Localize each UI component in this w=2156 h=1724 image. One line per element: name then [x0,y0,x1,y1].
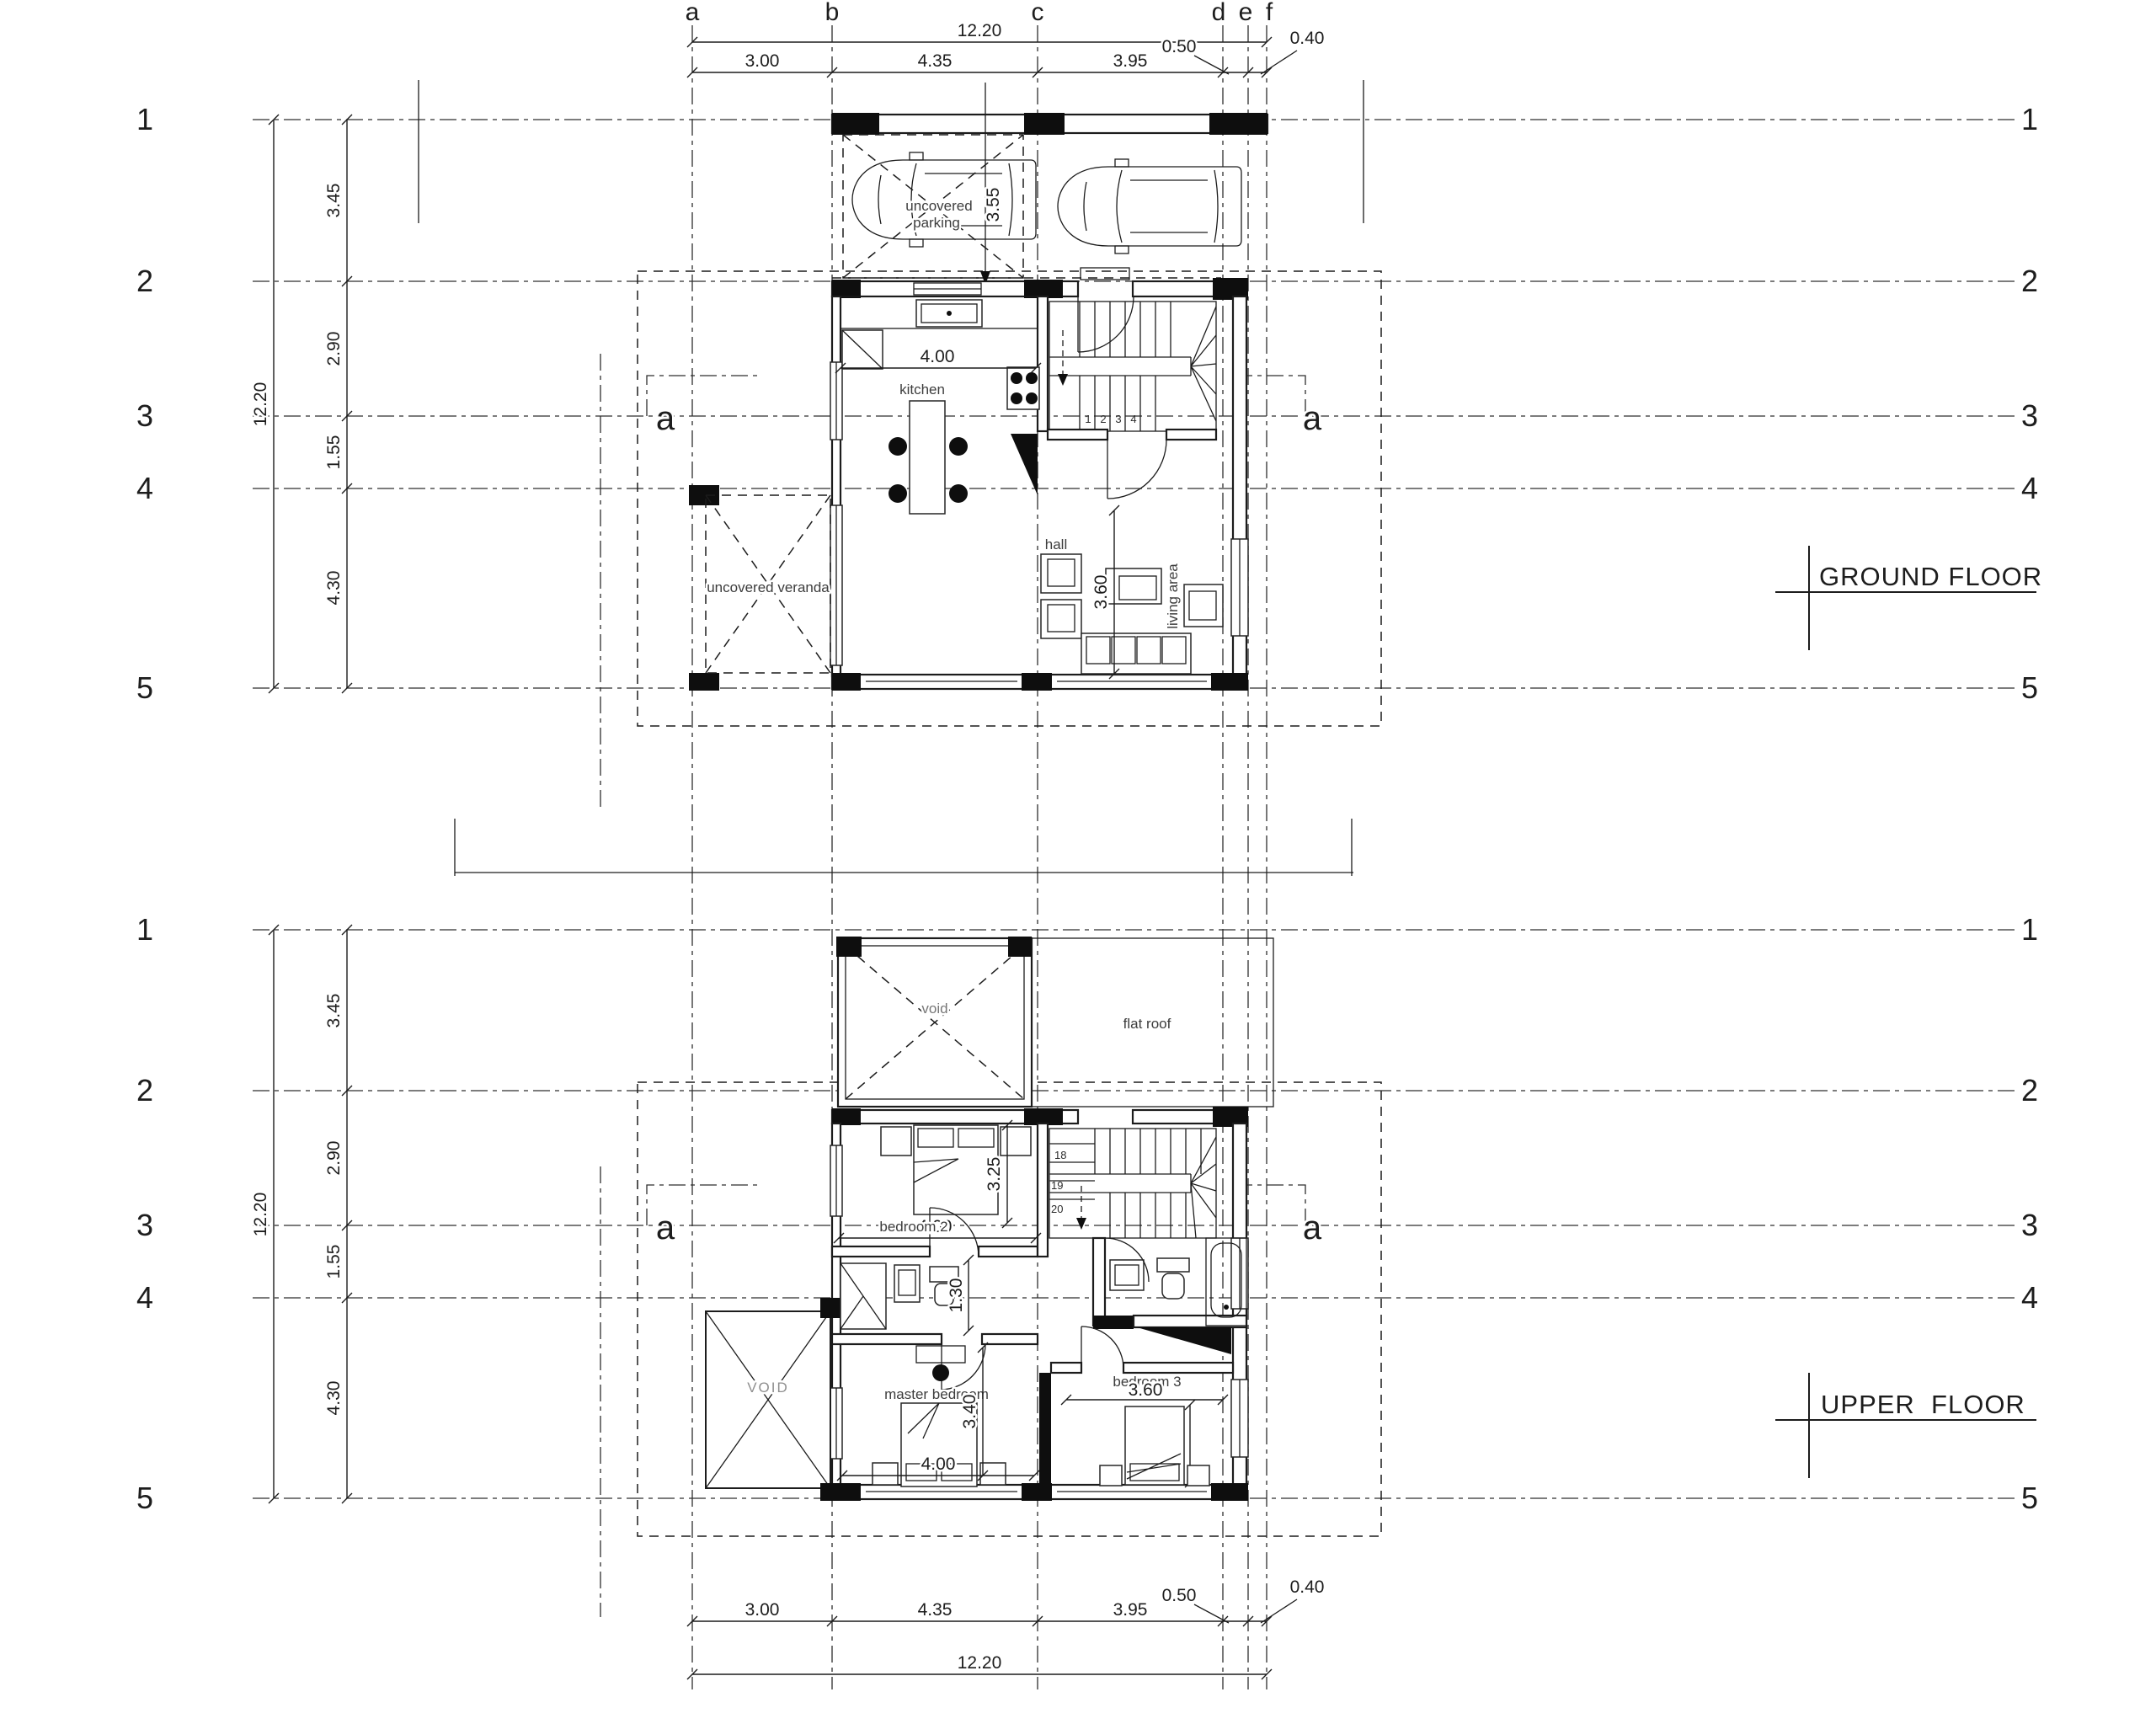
dim-left-u-4: 4.30 [324,1381,344,1416]
step-18: 18 [1054,1149,1066,1161]
dim-040-bot: 0.40 [1290,1577,1325,1597]
stairs-ground: 1 2 3 4 [1049,296,1216,431]
label-bedroom2: bedroom 2 [879,1219,947,1235]
dimensions-left-ground: 12.20 3.45 2.90 1.55 4.30 [251,115,352,693]
row-3-gr: 3 [2021,398,2038,433]
dimensions-left-upper: 12.20 3.45 2.90 1.55 4.30 [251,925,352,1503]
row-4-gr: 4 [2021,471,2038,505]
row-1-gr: 1 [2021,102,2038,136]
row-4-gl: 4 [136,471,153,505]
bedroom2: 4.00 3.25 bedroom 2 [832,1120,1048,1257]
dim-seg-top-3: 3.95 [1113,51,1148,71]
row-1-ul: 1 [136,912,153,947]
step-2: 2 [1100,413,1106,425]
label-flat-roof: flat roof [1123,1016,1171,1032]
grid-letter-c: c [1032,0,1044,26]
dim-seg-top-1: 3.00 [745,51,780,71]
grid-letter-e: e [1239,0,1253,26]
row-2-ul: 2 [136,1073,153,1108]
dim-parking-depth: 3.55 [984,188,1003,222]
understair-closet [1011,434,1038,495]
label-living: living area [1165,563,1181,629]
sloped-hatch [1137,1327,1231,1354]
label-hall: hall [1045,536,1067,552]
floor-plan: a b c d e f 12.20 3.00 4.35 3.95 0.50 0.… [0,0,2156,1724]
stairs-upper: 18 19 20 [1049,1129,1216,1238]
veranda: uncovered veranda [689,485,830,691]
label-veranda: uncovered veranda [707,579,830,595]
wall-master-bedroom3 [1039,1373,1051,1485]
section-a-ur: a [1303,1209,1322,1246]
row-4-ul: 4 [136,1280,153,1315]
row-2-gr: 2 [2021,264,2038,298]
step-1: 1 [1085,413,1091,425]
dim-kitchen-width: 4.00 [921,347,955,366]
row-2-gl: 2 [136,264,153,298]
dim-seg-top-2: 4.35 [918,51,953,71]
section-a-gr: a [1303,400,1322,437]
dim-left-u-2: 2.90 [324,1141,344,1176]
grid-letter-f: f [1266,0,1273,26]
bedroom3: bedroom 3 3.60 3.80 [1051,1326,1233,1487]
hall-door [1107,440,1166,499]
row-5-ur: 5 [2021,1481,2038,1515]
bathroom [1093,1238,1246,1354]
dim-left-total-u: 12.20 [251,1193,270,1237]
row-1-gl: 1 [136,102,153,136]
row-2-ur: 2 [2021,1073,2038,1108]
dim-master-width: 4.00 [921,1454,956,1474]
dim-overall-bot: 12.20 [958,1653,1002,1673]
dim-bedroom2-depth: 3.25 [985,1157,1004,1192]
dim-left-total-g: 12.20 [251,382,270,427]
step-4: 4 [1130,413,1136,425]
row-5-ul: 5 [136,1481,153,1515]
grid-letter-b: b [825,0,840,26]
step-3: 3 [1115,413,1121,425]
row-labels: 1 2 3 4 5 1 2 3 4 5 1 2 3 4 5 1 2 3 4 5 [136,102,2038,1515]
dim-master-depth: 3.40 [960,1395,979,1429]
step-19: 19 [1051,1179,1063,1192]
step-20: 20 [1051,1203,1063,1215]
parking-area: uncovered parking 3.55 [832,83,1267,285]
row-5-gl: 5 [136,670,153,705]
row-4-ur: 4 [2021,1280,2038,1315]
roof-void: void flat roof [836,937,1273,1107]
row-5-gr: 5 [2021,670,2038,705]
dimensions-top: a b c d e f 12.20 3.00 4.35 3.95 0.50 0.… [686,0,1325,77]
dim-seg-bot-3: 3.95 [1113,1600,1148,1620]
dim-left-u-3: 1.55 [324,1245,344,1279]
grid-letter-a: a [686,0,700,26]
dim-corridor: 1.30 [947,1278,966,1313]
dim-left-g-1: 3.45 [324,184,344,218]
dim-seg-bot-1: 3.00 [745,1600,780,1620]
hall-living: hall 3.60 living area [1041,430,1223,679]
grid-letter-d: d [1212,0,1226,26]
dim-left-u-1: 3.45 [324,994,344,1028]
row-1-ur: 1 [2021,912,2038,947]
section-a-ul: a [656,1209,675,1246]
dim-seg-bot-2: 4.35 [918,1600,953,1620]
dim-bedroom3-width: 3.60 [1129,1380,1163,1400]
label-parking-2: parking [913,215,960,231]
row-3-ur: 3 [2021,1208,2038,1242]
row-3-gl: 3 [136,398,153,433]
master-bedroom: master bedroom 4.00 3.40 [837,1342,1051,1486]
label-kitchen: kitchen [899,382,945,398]
dimensions-bottom: 3.00 4.35 3.95 0.50 0.40 12.20 [687,1577,1324,1679]
label-void: void [921,1001,947,1017]
dim-left-g-4: 4.30 [324,571,344,606]
dim-left-g-3: 1.55 [324,435,344,470]
dim-050-bot: 0.50 [1162,1586,1197,1605]
label-void-caps: VOID [747,1380,789,1396]
ground-floor-title: GROUND FLOOR [1819,562,2042,591]
dim-050-top: 0.50 [1162,37,1197,56]
ground-floor-plan: uncovered parking 3.55 [689,83,1267,691]
architectural-sheet: a b c d e f 12.20 3.00 4.35 3.95 0.50 0.… [0,0,2156,1724]
kitchen: 4.00 kitchen [835,296,1048,514]
dim-left-g-2: 2.90 [324,332,344,366]
void-box: VOID [706,1298,842,1501]
dim-living-depth: 3.60 [1091,575,1111,610]
upper-floor-plan: void flat roof V [706,937,1273,1501]
label-parking-1: uncovered [905,198,972,214]
dim-overall-top: 12.20 [958,21,1002,40]
row-3-ul: 3 [136,1208,153,1242]
dim-040-top: 0.40 [1290,29,1325,48]
section-a-gl: a [656,400,675,437]
bedroom3-door [1081,1326,1123,1369]
upper-floor-title: UPPER FLOOR [1821,1390,2025,1419]
floor-titles: GROUND FLOOR UPPER FLOOR [1775,546,2042,1478]
